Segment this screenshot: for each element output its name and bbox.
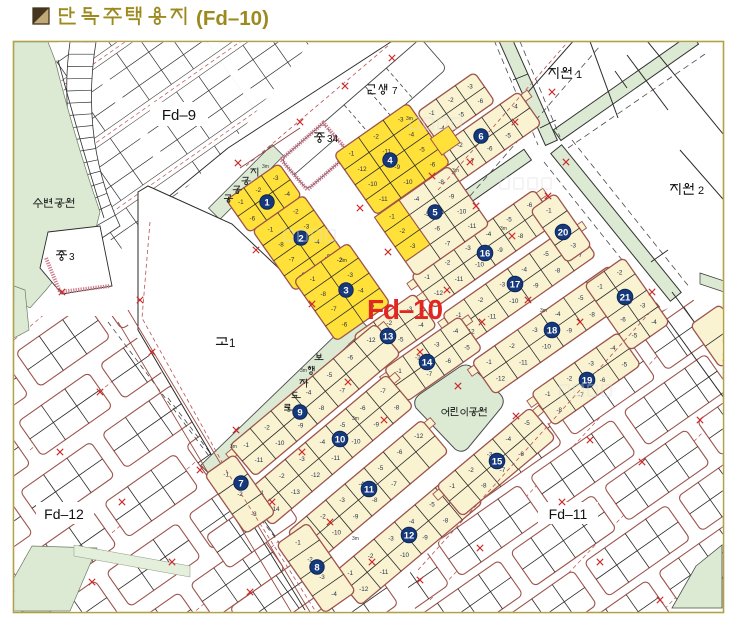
svg-text:8: 8 bbox=[314, 562, 319, 573]
svg-text:-1: -1 bbox=[545, 391, 551, 398]
svg-text:-2: -2 bbox=[368, 553, 374, 560]
svg-text:-1: -1 bbox=[347, 570, 353, 577]
svg-text:-5: -5 bbox=[464, 345, 470, 352]
svg-text:-4: -4 bbox=[414, 196, 420, 203]
svg-text:-2: -2 bbox=[399, 228, 405, 235]
svg-text:-1: -1 bbox=[546, 208, 552, 215]
svg-text:-2: -2 bbox=[448, 97, 454, 104]
svg-text:-9: -9 bbox=[422, 535, 428, 542]
svg-text:-5: -5 bbox=[378, 465, 384, 472]
svg-text:-6: -6 bbox=[360, 405, 366, 412]
svg-text:-4: -4 bbox=[555, 311, 561, 318]
svg-text:-1: -1 bbox=[486, 359, 492, 366]
svg-text:-1: -1 bbox=[238, 199, 244, 206]
svg-text:17: 17 bbox=[510, 279, 521, 290]
svg-text:-4: -4 bbox=[284, 191, 290, 198]
svg-text:-12: -12 bbox=[311, 472, 321, 479]
svg-text:-3: -3 bbox=[532, 327, 538, 334]
svg-text:Fd–9: Fd–9 bbox=[162, 107, 196, 124]
svg-text:-10: -10 bbox=[351, 438, 361, 445]
svg-text:-8: -8 bbox=[443, 518, 449, 525]
svg-text:-10: -10 bbox=[457, 208, 467, 215]
svg-text:-4: -4 bbox=[319, 439, 325, 446]
svg-text:-1: -1 bbox=[268, 226, 274, 233]
svg-text:1: 1 bbox=[264, 197, 270, 208]
svg-text:-10: -10 bbox=[509, 298, 519, 305]
svg-text:-3: -3 bbox=[640, 303, 646, 310]
svg-text:-4: -4 bbox=[453, 328, 459, 335]
svg-text:-1: -1 bbox=[429, 110, 435, 117]
svg-text:-5: -5 bbox=[505, 133, 511, 140]
svg-text:-11: -11 bbox=[380, 569, 389, 576]
svg-text:3m: 3m bbox=[230, 444, 237, 450]
svg-text:-2: -2 bbox=[237, 491, 243, 498]
svg-text:18: 18 bbox=[547, 325, 558, 336]
svg-text:-6: -6 bbox=[477, 98, 483, 105]
svg-text:-1: -1 bbox=[243, 442, 249, 449]
svg-text:-12: -12 bbox=[358, 166, 368, 173]
svg-text:-3: -3 bbox=[465, 245, 471, 252]
svg-text:-10: -10 bbox=[403, 179, 413, 186]
svg-text:-2: -2 bbox=[478, 297, 484, 304]
svg-text:-9: -9 bbox=[497, 247, 503, 254]
svg-text:-3: -3 bbox=[299, 456, 305, 463]
svg-text:-6: -6 bbox=[430, 162, 436, 169]
svg-text:-3: -3 bbox=[273, 175, 279, 182]
svg-text:-5: -5 bbox=[506, 217, 512, 224]
svg-text:-8: -8 bbox=[438, 179, 444, 186]
svg-text:-2: -2 bbox=[373, 134, 379, 141]
svg-text:-4: -4 bbox=[408, 131, 414, 138]
svg-text:-7: -7 bbox=[445, 240, 451, 247]
svg-text:-3: -3 bbox=[339, 497, 345, 504]
svg-text:12: 12 bbox=[404, 530, 415, 541]
svg-text:-5: -5 bbox=[340, 422, 346, 429]
svg-text:-6: -6 bbox=[347, 355, 353, 362]
svg-text:-2: -2 bbox=[279, 473, 285, 480]
svg-text:-6: -6 bbox=[342, 321, 348, 328]
svg-text:-1: -1 bbox=[389, 213, 395, 220]
svg-text:5: 5 bbox=[432, 207, 438, 218]
svg-text:-3: -3 bbox=[499, 282, 505, 289]
svg-text:3: 3 bbox=[343, 285, 348, 296]
svg-text:21: 21 bbox=[620, 292, 631, 303]
svg-text:3m: 3m bbox=[406, 116, 413, 122]
svg-text:-13: -13 bbox=[291, 489, 301, 496]
svg-text:-5: -5 bbox=[632, 333, 638, 340]
svg-text:-7: -7 bbox=[289, 257, 295, 264]
svg-text:-6: -6 bbox=[397, 449, 403, 456]
svg-text:-1: -1 bbox=[349, 151, 355, 158]
svg-text:-8: -8 bbox=[319, 405, 325, 412]
svg-text:(Fd–10): (Fd–10) bbox=[196, 7, 269, 30]
svg-text:-8: -8 bbox=[518, 233, 524, 240]
svg-text:20: 20 bbox=[558, 227, 569, 238]
svg-text:-1: -1 bbox=[424, 274, 430, 281]
svg-text:-5: -5 bbox=[621, 362, 627, 369]
svg-text:10: 10 bbox=[335, 434, 346, 445]
svg-text:-4: -4 bbox=[358, 287, 364, 294]
svg-text:-5: -5 bbox=[524, 420, 530, 427]
svg-text:-12: -12 bbox=[359, 586, 369, 593]
svg-text:-2: -2 bbox=[264, 424, 270, 431]
svg-text:-4: -4 bbox=[409, 519, 415, 526]
svg-text:-10: -10 bbox=[368, 181, 378, 188]
svg-text:-2: -2 bbox=[293, 209, 299, 216]
svg-text:3m: 3m bbox=[352, 416, 359, 422]
svg-text:-3: -3 bbox=[285, 407, 291, 414]
svg-text:-9: -9 bbox=[449, 194, 455, 201]
svg-text:2: 2 bbox=[298, 233, 303, 244]
svg-text:1: 1 bbox=[576, 69, 582, 81]
svg-text:-3: -3 bbox=[434, 341, 440, 348]
svg-text:-9: -9 bbox=[373, 421, 379, 428]
svg-text:-10: -10 bbox=[332, 529, 342, 536]
svg-text:-1: -1 bbox=[295, 539, 301, 546]
svg-text:-2: -2 bbox=[445, 260, 451, 267]
svg-text:Fd–10: Fd–10 bbox=[367, 294, 443, 325]
svg-text:-3: -3 bbox=[388, 536, 394, 543]
svg-text:-4: -4 bbox=[306, 390, 312, 397]
svg-text:-3: -3 bbox=[467, 83, 473, 90]
svg-text:3: 3 bbox=[69, 252, 75, 263]
svg-text:3m: 3m bbox=[262, 164, 269, 170]
svg-text:-5: -5 bbox=[543, 251, 549, 258]
svg-text:-5: -5 bbox=[419, 147, 425, 154]
svg-text:-11: -11 bbox=[488, 313, 497, 320]
svg-text:-5: -5 bbox=[398, 336, 404, 343]
svg-text:7: 7 bbox=[238, 478, 243, 489]
svg-text:-4: -4 bbox=[314, 239, 320, 246]
svg-text:-8: -8 bbox=[320, 291, 326, 298]
svg-text:-12: -12 bbox=[414, 433, 424, 440]
svg-text:-11: -11 bbox=[519, 360, 528, 367]
svg-text:3m: 3m bbox=[452, 168, 459, 174]
svg-text:-3: -3 bbox=[398, 116, 404, 123]
svg-text:-10: -10 bbox=[542, 343, 552, 350]
svg-text:-10: -10 bbox=[400, 552, 410, 559]
svg-text:-12: -12 bbox=[366, 337, 376, 344]
svg-text:-11: -11 bbox=[379, 196, 388, 203]
svg-text:-2: -2 bbox=[509, 343, 515, 350]
svg-text:-3: -3 bbox=[570, 243, 576, 250]
svg-text:-9: -9 bbox=[533, 283, 539, 290]
svg-text:-1: -1 bbox=[223, 472, 229, 479]
svg-text:-8: -8 bbox=[481, 483, 487, 490]
svg-text:-3: -3 bbox=[319, 574, 325, 581]
svg-text:-6: -6 bbox=[487, 145, 493, 152]
svg-text:-8: -8 bbox=[555, 267, 561, 274]
svg-text:15: 15 bbox=[492, 456, 503, 467]
svg-text:-11: -11 bbox=[455, 276, 464, 283]
svg-text:-6: -6 bbox=[600, 377, 606, 384]
svg-text:-3: -3 bbox=[588, 360, 594, 367]
svg-text:-7: -7 bbox=[426, 371, 432, 378]
svg-text:-2: -2 bbox=[255, 187, 261, 194]
svg-text:-3: -3 bbox=[410, 243, 416, 250]
svg-text:34: 34 bbox=[327, 134, 339, 145]
svg-text:3m: 3m bbox=[500, 226, 507, 232]
svg-text:-7: -7 bbox=[339, 387, 345, 394]
svg-text:-11: -11 bbox=[468, 223, 477, 230]
svg-text:-6: -6 bbox=[445, 358, 451, 365]
svg-text:-4: -4 bbox=[486, 231, 492, 238]
svg-text:-8: -8 bbox=[394, 404, 400, 411]
svg-text:-4: -4 bbox=[521, 266, 527, 273]
svg-text:-9: -9 bbox=[353, 513, 359, 520]
svg-text:Fd–11: Fd–11 bbox=[549, 506, 588, 522]
svg-text:-10: -10 bbox=[475, 262, 485, 269]
svg-text:-2: -2 bbox=[320, 513, 326, 520]
svg-text:-5: -5 bbox=[578, 295, 584, 302]
svg-text:-8: -8 bbox=[589, 311, 595, 318]
svg-text:-2: -2 bbox=[617, 270, 623, 277]
svg-text:-4: -4 bbox=[331, 591, 337, 598]
svg-text:14: 14 bbox=[422, 357, 433, 368]
svg-text:-1: -1 bbox=[449, 483, 455, 490]
svg-text:3m: 3m bbox=[300, 368, 307, 374]
svg-text:-5: -5 bbox=[429, 501, 435, 508]
svg-text:-4: -4 bbox=[505, 436, 511, 443]
svg-text:7: 7 bbox=[392, 86, 398, 97]
svg-text:-9: -9 bbox=[298, 422, 304, 429]
svg-text:Fd–12: Fd–12 bbox=[44, 506, 84, 522]
svg-text:-11: -11 bbox=[331, 455, 340, 462]
svg-text:1: 1 bbox=[229, 338, 235, 350]
svg-text:4: 4 bbox=[387, 155, 393, 166]
svg-text:-8: -8 bbox=[372, 497, 378, 504]
svg-text:-1: -1 bbox=[597, 284, 603, 291]
svg-text:-8: -8 bbox=[278, 242, 284, 249]
svg-text:2: 2 bbox=[698, 185, 704, 197]
svg-text:-10: -10 bbox=[275, 440, 285, 447]
svg-text:-7: -7 bbox=[331, 306, 337, 313]
svg-text:-1: -1 bbox=[396, 368, 402, 375]
svg-text:-1: -1 bbox=[310, 276, 316, 283]
svg-text:6: 6 bbox=[478, 131, 483, 142]
svg-text:3m: 3m bbox=[352, 536, 359, 542]
svg-text:-2: -2 bbox=[468, 467, 474, 474]
svg-text:11: 11 bbox=[364, 484, 375, 495]
svg-text:3m: 3m bbox=[540, 308, 547, 314]
svg-text:-11: -11 bbox=[255, 457, 264, 464]
svg-text:-5: -5 bbox=[327, 372, 333, 379]
svg-text:-6: -6 bbox=[249, 216, 255, 223]
svg-text:3m: 3m bbox=[340, 258, 347, 264]
svg-text:-2: -2 bbox=[567, 376, 573, 383]
svg-text:-12: -12 bbox=[496, 376, 506, 383]
svg-text:-7: -7 bbox=[380, 388, 386, 395]
svg-text:-6: -6 bbox=[620, 316, 626, 323]
svg-text:9: 9 bbox=[297, 407, 302, 418]
svg-text:13: 13 bbox=[383, 331, 394, 342]
svg-text:16: 16 bbox=[480, 248, 491, 259]
svg-text:-6: -6 bbox=[527, 202, 533, 209]
svg-text:-9: -9 bbox=[566, 327, 572, 334]
svg-text:-4: -4 bbox=[651, 319, 657, 326]
svg-text:-3: -3 bbox=[347, 272, 353, 279]
svg-text:-6: -6 bbox=[434, 226, 440, 233]
svg-text:-7: -7 bbox=[391, 481, 397, 488]
